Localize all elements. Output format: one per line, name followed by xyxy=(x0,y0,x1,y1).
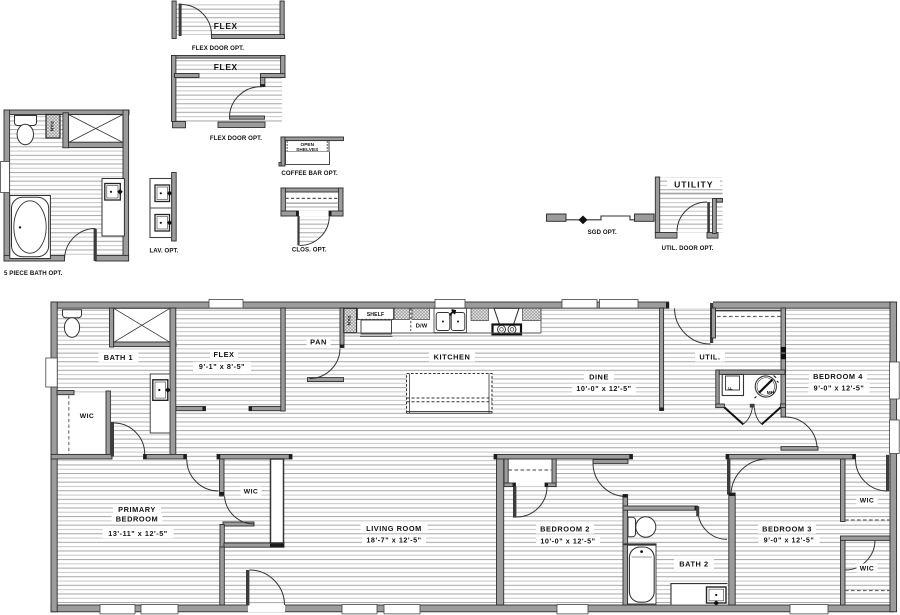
svg-text:UTIL. DOOR OPT.: UTIL. DOOR OPT. xyxy=(662,245,714,252)
svg-text:SHELVES: SHELVES xyxy=(296,147,318,152)
svg-text:COFFEE BAR OPT.: COFFEE BAR OPT. xyxy=(281,170,338,177)
svg-text:FLEX DOOR OPT.: FLEX DOOR OPT. xyxy=(210,135,262,142)
svg-text:FLEX DOOR OPT.: FLEX DOOR OPT. xyxy=(192,45,244,52)
svg-text:LAV. OPT.: LAV. OPT. xyxy=(149,247,178,254)
svg-text:CLOS. OPT.: CLOS. OPT. xyxy=(292,246,327,253)
svg-text:DINE: DINE xyxy=(589,373,609,382)
svg-text:BATH 1: BATH 1 xyxy=(104,353,133,362)
svg-text:PRIMARY: PRIMARY xyxy=(118,505,156,514)
svg-text:WIC: WIC xyxy=(860,498,874,505)
svg-text:10'-0" x 12'-5": 10'-0" x 12'-5" xyxy=(576,384,631,393)
svg-text:BEDROOM: BEDROOM xyxy=(116,515,158,524)
svg-text:KITCHEN: KITCHEN xyxy=(434,353,471,362)
svg-text:FLEX: FLEX xyxy=(213,350,234,359)
svg-text:MH: MH xyxy=(767,390,775,396)
svg-text:BEDROOM 4: BEDROOM 4 xyxy=(813,372,863,381)
svg-text:D/W: D/W xyxy=(416,324,428,330)
svg-text:BEDROOM 2: BEDROOM 2 xyxy=(540,525,590,534)
svg-text:SGD OPT.: SGD OPT. xyxy=(588,229,617,236)
svg-text:FLEX: FLEX xyxy=(214,21,238,31)
svg-text:PAN: PAN xyxy=(310,338,327,347)
svg-text:BEDROOM 3: BEDROOM 3 xyxy=(762,525,812,534)
svg-text:UTIL.: UTIL. xyxy=(699,353,720,362)
svg-text:9'-0" x 12'-5": 9'-0" x 12'-5" xyxy=(764,536,815,545)
svg-text:FLEX: FLEX xyxy=(214,62,238,72)
svg-text:9'-1" x 8'-5": 9'-1" x 8'-5" xyxy=(199,362,245,371)
svg-text:5 PIECE BATH OPT.: 5 PIECE BATH OPT. xyxy=(4,270,63,277)
svg-text:WIC: WIC xyxy=(80,413,94,420)
svg-text:BATH 2: BATH 2 xyxy=(679,560,708,569)
svg-text:SHELF: SHELF xyxy=(367,312,385,318)
svg-text:WIC: WIC xyxy=(244,489,258,496)
svg-text:9'-0" x 12'-5": 9'-0" x 12'-5" xyxy=(814,383,865,392)
svg-text:LIVING ROOM: LIVING ROOM xyxy=(366,524,422,533)
svg-text:WIC: WIC xyxy=(860,566,874,573)
svg-text:18'-7" x 12'-5": 18'-7" x 12'-5" xyxy=(366,536,421,545)
svg-text:13'-11" x 12'-5": 13'-11" x 12'-5" xyxy=(108,529,167,538)
svg-text:PAN: PAN xyxy=(49,121,55,132)
svg-text:10'-0" x 12'-5": 10'-0" x 12'-5" xyxy=(540,537,595,546)
svg-text:UTILITY: UTILITY xyxy=(674,180,713,190)
svg-text:PAN: PAN xyxy=(346,315,352,326)
